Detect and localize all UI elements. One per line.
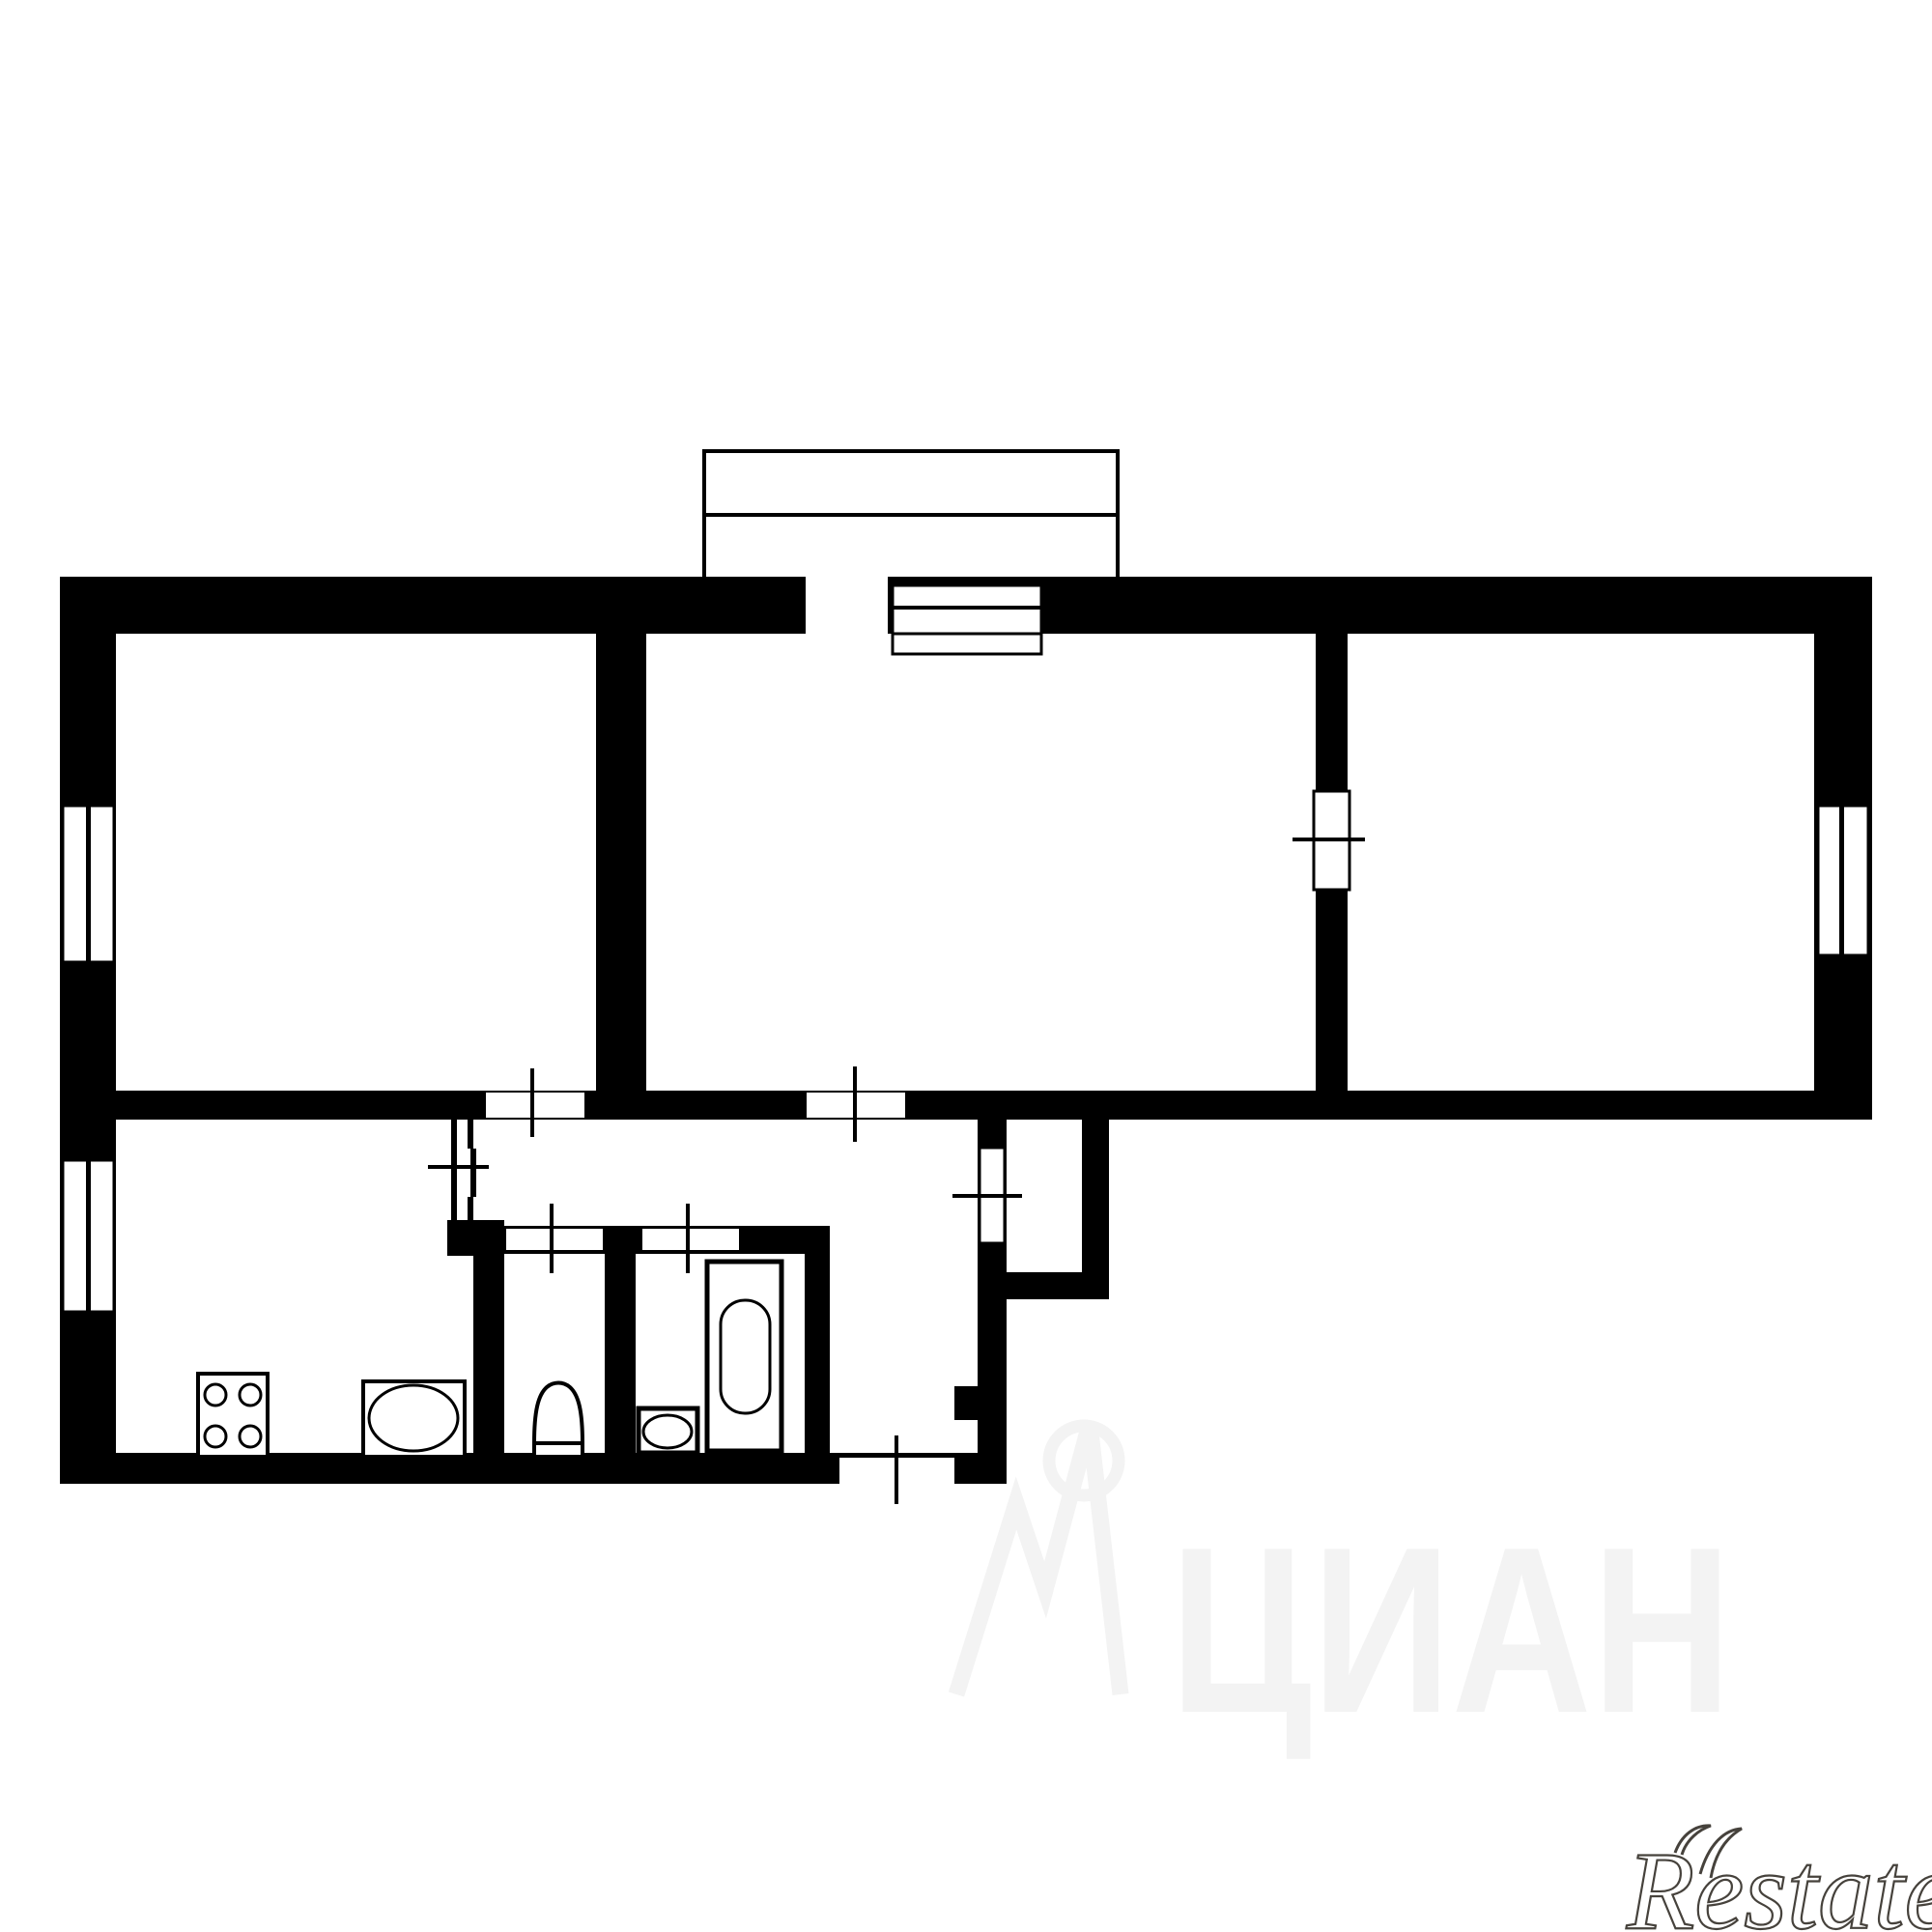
svg-text:ЦИАН: ЦИАН <box>1170 1497 1732 1762</box>
svg-text:Restate: Restate <box>1626 1830 1932 1932</box>
